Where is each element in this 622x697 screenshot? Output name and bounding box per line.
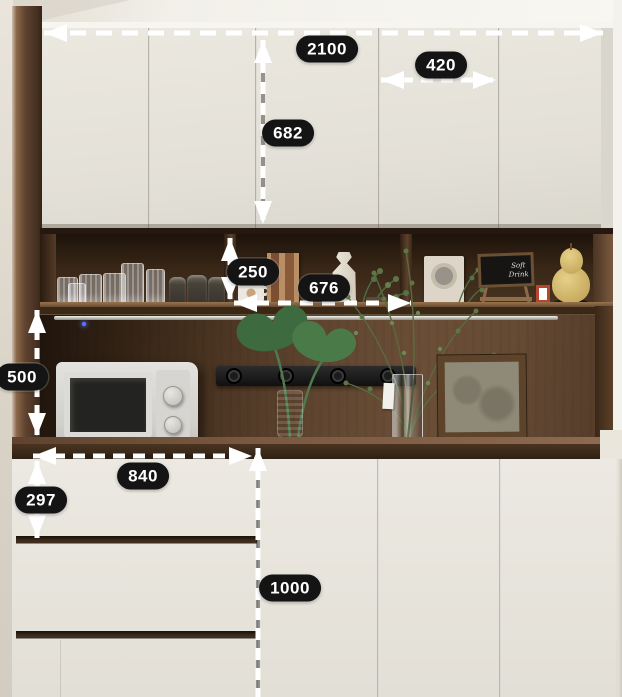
dim-label-total-width: 2100 — [296, 36, 358, 63]
upper-door-seam — [378, 28, 380, 228]
drawer-groove — [16, 631, 257, 639]
microwave-knob — [163, 386, 183, 406]
crystal-glass — [68, 283, 86, 303]
tall-glass — [121, 263, 144, 303]
dim-label-drawer-height: 297 — [15, 487, 67, 514]
counter-front-edge — [12, 444, 608, 459]
glass-cylinder-vase — [392, 374, 423, 440]
upper-cabinet-side-panel — [601, 28, 613, 228]
indicator-led — [82, 322, 86, 326]
wooden-picture-frame — [438, 355, 527, 440]
storage-canister — [208, 277, 225, 303]
recess-right-face — [593, 234, 613, 306]
tall-glass — [146, 269, 165, 303]
right-wall — [613, 0, 622, 460]
lower-door-faint-seam — [60, 640, 61, 697]
green-glass-vase — [277, 390, 303, 438]
upper-door-seam — [148, 28, 150, 228]
mini-red-frame — [536, 285, 550, 303]
annotated-cabinet-photo: Soft Drink — [0, 0, 622, 697]
dim-label-middle-width: 676 — [298, 275, 350, 302]
storage-canister — [187, 275, 207, 303]
upper-door-seam — [255, 28, 257, 228]
wall-behind-counter — [600, 430, 622, 459]
recess-left-face — [40, 234, 56, 308]
dim-label-open-height: 500 — [0, 364, 48, 391]
microwave-door — [64, 372, 152, 438]
recess-right-edge — [595, 306, 613, 440]
storage-canister — [169, 277, 186, 303]
counter-top — [12, 437, 608, 444]
dim-label-door-width: 420 — [415, 52, 467, 79]
drawer-groove — [16, 536, 257, 544]
lower-door-seam — [377, 459, 379, 697]
dim-label-upper-height: 682 — [262, 120, 314, 147]
gourd-ornament-top — [560, 248, 583, 274]
microwave-control-panel — [156, 370, 190, 444]
upper-door-seam — [498, 28, 500, 228]
lower-door-seam — [257, 459, 259, 697]
stem-in-water — [407, 379, 415, 437]
dim-label-counter-width: 840 — [117, 463, 169, 490]
dim-label-shelf-height: 250 — [227, 259, 279, 286]
gourd-stem — [570, 243, 572, 250]
dim-label-base-height: 1000 — [259, 575, 321, 602]
stem-in-water — [402, 379, 404, 437]
microwave-knob — [164, 416, 182, 434]
lower-cabinet-right-shadow — [616, 459, 622, 697]
lower-door-seam — [499, 459, 501, 697]
hanging-tag — [382, 383, 394, 410]
